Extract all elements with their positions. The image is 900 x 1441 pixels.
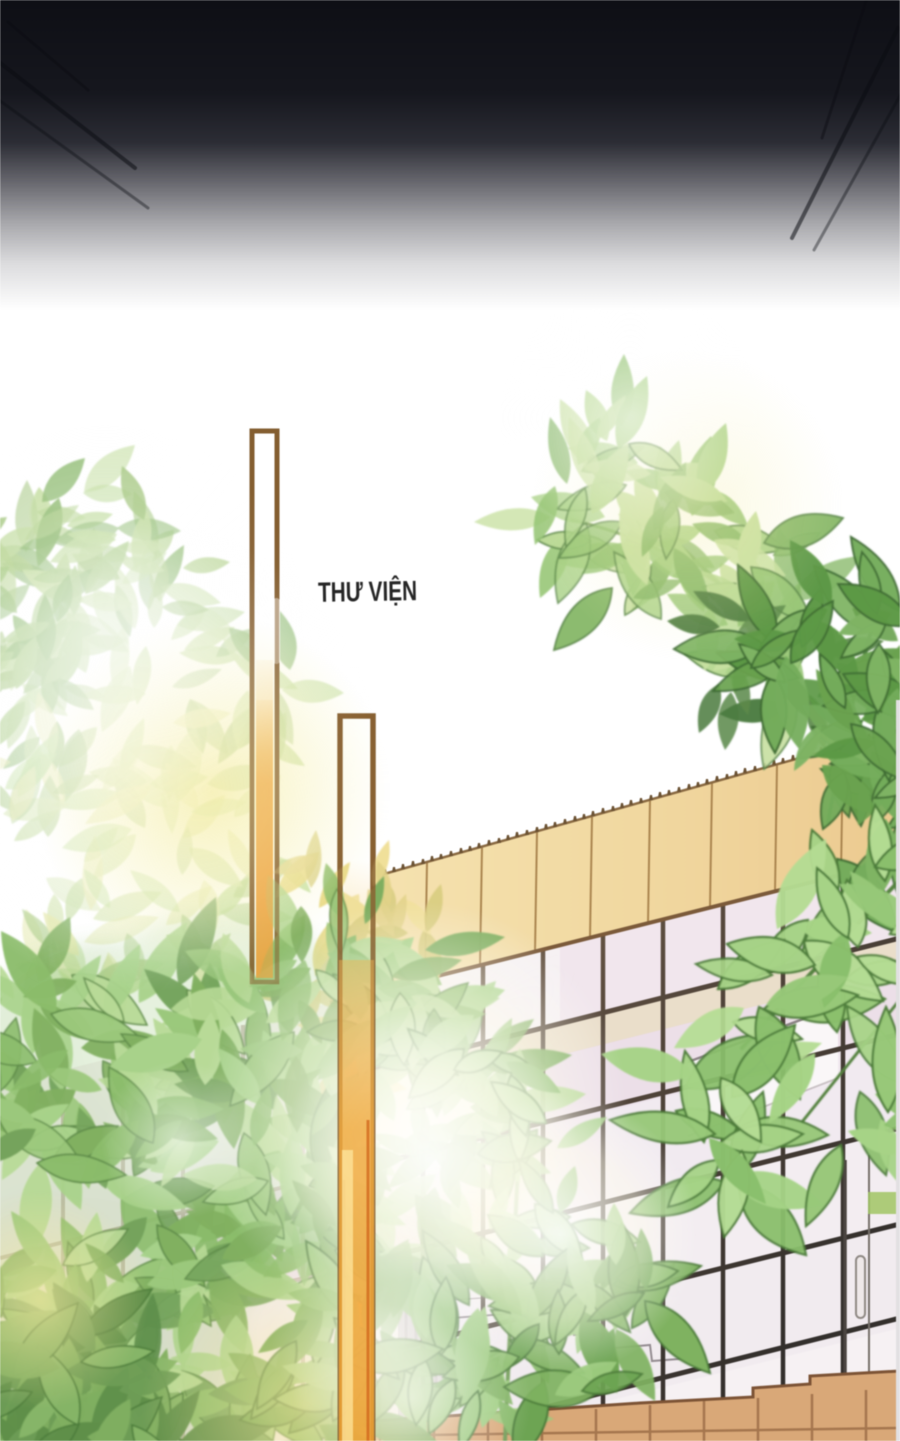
svg-text:THƯ VIỆN: THƯ VIỆN: [318, 575, 418, 608]
